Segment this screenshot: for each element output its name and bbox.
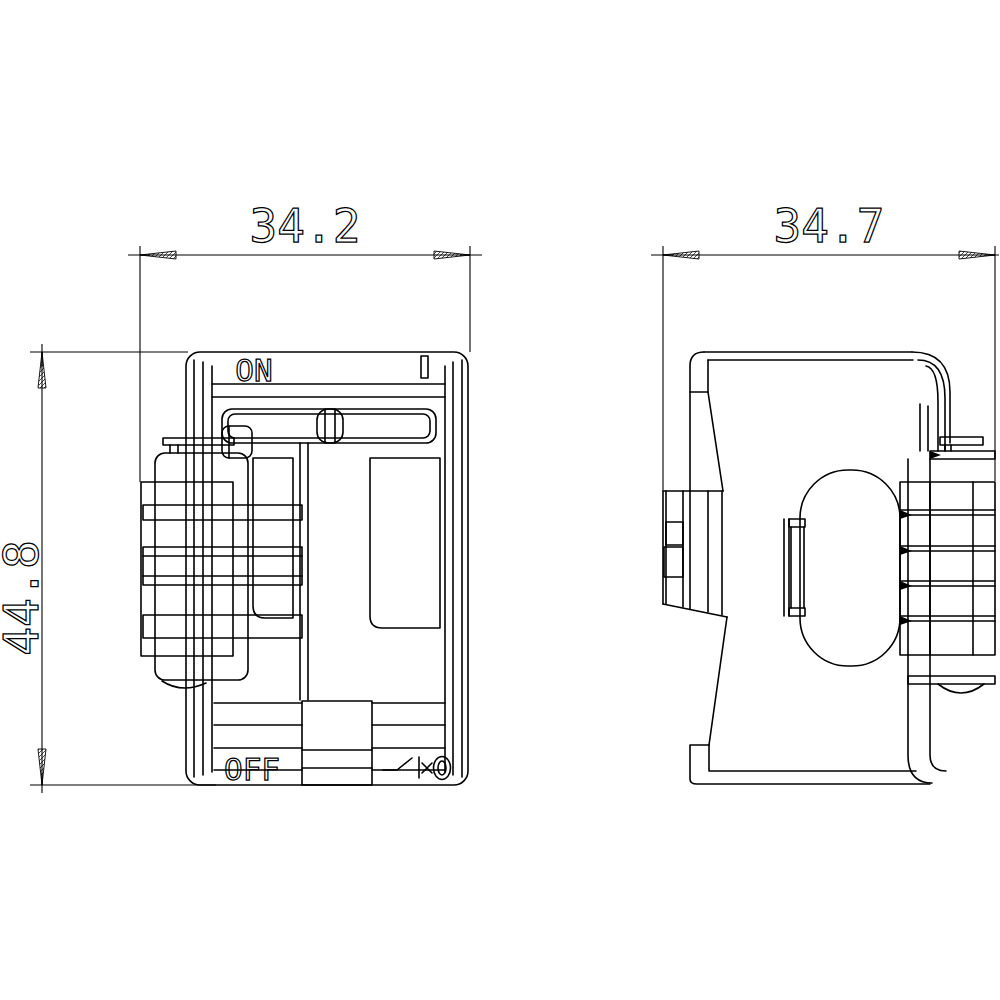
paper-background [0,0,1000,1000]
off-label: OFF [224,751,280,787]
dimension-label-overall-height: 44.8 [0,540,49,656]
technical-drawing: 34.2 34.7 44.8 ON [0,0,1000,1000]
on-label: ON [235,352,272,388]
dimension-label-front-width: 34.2 [250,199,361,253]
dimension-label-side-width: 34.7 [774,199,885,253]
